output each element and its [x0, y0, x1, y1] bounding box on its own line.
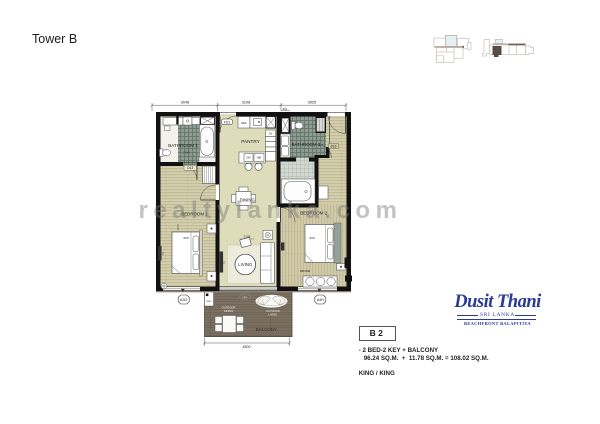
svg-text:BRG: BRG — [207, 301, 212, 303]
svg-text:WB: WB — [257, 157, 261, 160]
svg-text:OUTDOOR: OUTDOOR — [266, 309, 280, 313]
svg-text:501: 501 — [283, 107, 288, 111]
svg-text:DINING: DINING — [224, 309, 233, 313]
svg-text:3025: 3025 — [308, 101, 316, 105]
svg-text:GFA: GFA — [243, 296, 248, 299]
svg-text:BATHROOM 2: BATHROOM 2 — [292, 142, 321, 147]
svg-text:LIVING: LIVING — [268, 312, 277, 316]
svg-text:D13: D13 — [187, 166, 193, 170]
svg-text:OUTDOOR: OUTDOOR — [222, 306, 236, 310]
svg-text:3048: 3048 — [181, 101, 189, 105]
svg-text:PANTRY: PANTRY — [241, 139, 260, 144]
svg-text:DM: DM — [247, 157, 251, 160]
svg-text:A3O: A3O — [180, 298, 188, 302]
svg-text:TV: TV — [223, 261, 227, 265]
svg-text:3025: 3025 — [309, 236, 315, 240]
svg-text:FD1: FD1 — [224, 120, 231, 124]
svg-text:D15: D15 — [331, 144, 337, 148]
svg-text:TV: TV — [161, 252, 165, 256]
svg-text:LIVING: LIVING — [238, 262, 253, 267]
svg-text:3005: 3005 — [183, 236, 189, 240]
svg-text:OV: OV — [269, 132, 273, 135]
svg-text:BATHROOM 1: BATHROOM 1 — [168, 143, 198, 148]
svg-text:4500: 4500 — [243, 345, 251, 349]
svg-text:BALCONY: BALCONY — [256, 327, 277, 332]
svg-text:REF: REF — [241, 121, 247, 125]
svg-text:3108: 3108 — [242, 101, 250, 105]
svg-text:MINI BAR: MINI BAR — [300, 270, 311, 273]
svg-text:1570: 1570 — [176, 224, 180, 230]
svg-text:2045: 2045 — [183, 151, 190, 155]
svg-text:A4H: A4H — [317, 298, 325, 302]
